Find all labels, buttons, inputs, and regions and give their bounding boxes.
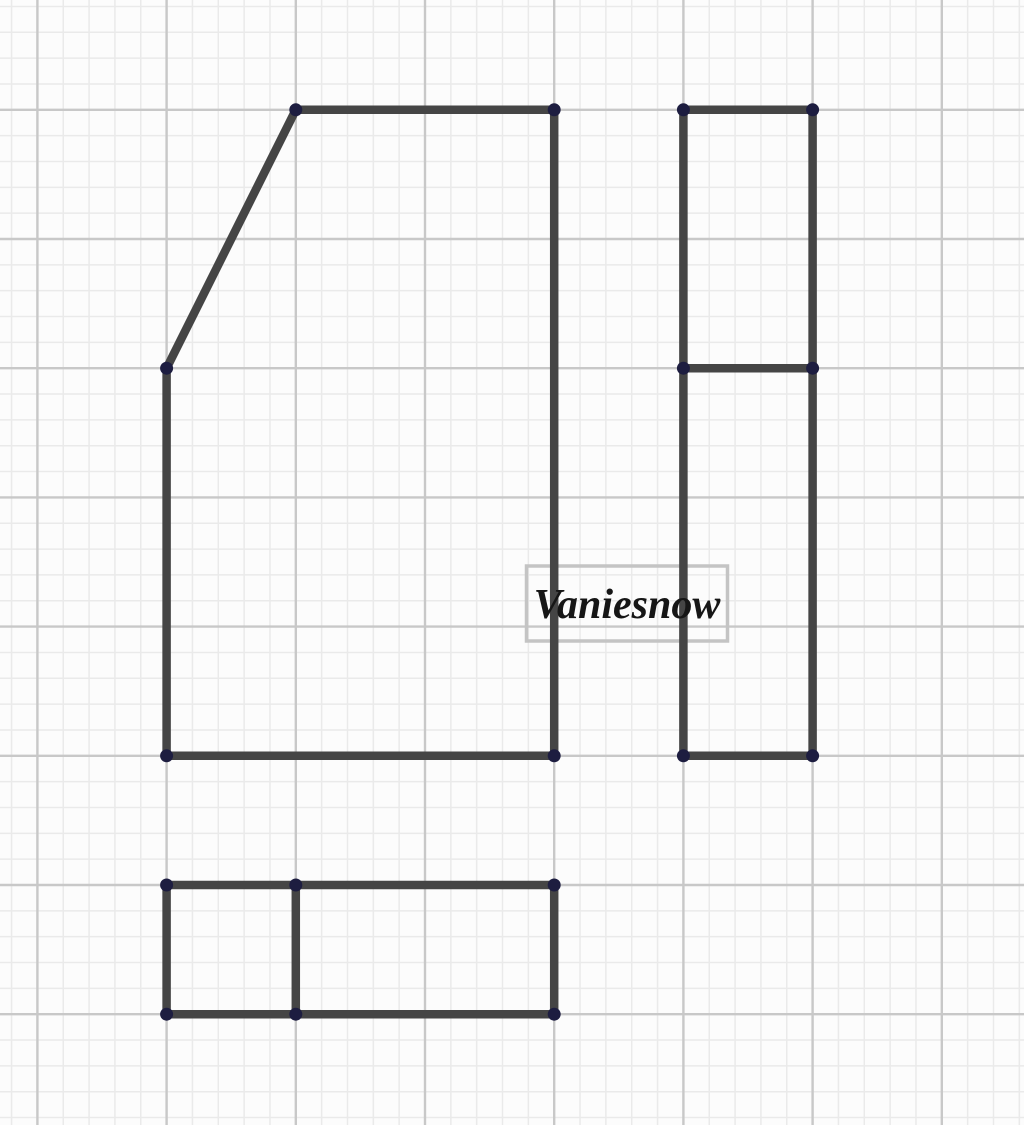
vertex-point[interactable] — [548, 749, 561, 762]
vertex-point[interactable] — [677, 103, 690, 116]
vertex-point[interactable] — [548, 1008, 561, 1021]
drawing-svg[interactable]: Vaniesnow — [0, 0, 1024, 1125]
vertex-point[interactable] — [806, 103, 819, 116]
geometry-canvas: Vaniesnow — [0, 0, 1024, 1125]
vertex-point[interactable] — [160, 362, 173, 375]
vertex-point[interactable] — [677, 749, 690, 762]
vertex-point[interactable] — [289, 1008, 302, 1021]
vertex-point[interactable] — [548, 879, 561, 892]
canvas-background — [0, 0, 1024, 1125]
vertex-point[interactable] — [677, 362, 690, 375]
vertex-point[interactable] — [548, 103, 561, 116]
vertex-point[interactable] — [806, 362, 819, 375]
vertex-point[interactable] — [160, 1008, 173, 1021]
vertex-point[interactable] — [160, 879, 173, 892]
vertex-point[interactable] — [289, 103, 302, 116]
vertex-point[interactable] — [289, 879, 302, 892]
label-text[interactable]: Vaniesnow — [534, 582, 722, 628]
vertex-point[interactable] — [160, 749, 173, 762]
vertex-point[interactable] — [806, 749, 819, 762]
